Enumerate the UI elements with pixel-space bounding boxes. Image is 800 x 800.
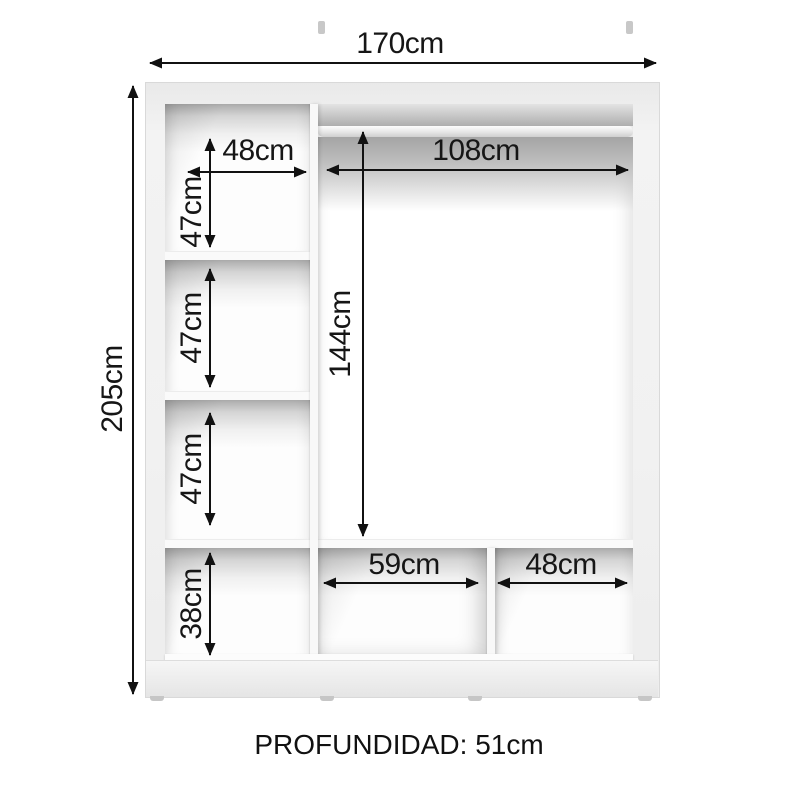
wardrobe-dimension-diagram: 170cm 205cm 48cm 47cm 108cm 144cm 47cm 4…: [0, 0, 800, 800]
dim-label-top-left-shelf-width: 48cm: [222, 136, 293, 166]
dim-label-total-width: 170cm: [356, 29, 444, 59]
dim-label-bottom-left-height: 38cm: [177, 568, 207, 639]
dim-label-hanging-space-height: 144cm: [326, 290, 356, 378]
dim-label-left-compartment-2-height: 47cm: [177, 292, 207, 363]
dim-label-left-compartment-1-height: 47cm: [177, 176, 207, 247]
dim-label-bottom-right-width: 48cm: [525, 550, 596, 580]
depth-caption: PROFUNDIDAD: 51cm: [254, 731, 543, 759]
dim-label-bottom-middle-width: 59cm: [368, 550, 439, 580]
dim-label-left-compartment-3-height: 47cm: [177, 433, 207, 504]
dim-label-hanging-rod-width: 108cm: [432, 136, 520, 166]
dim-label-total-height: 205cm: [98, 345, 128, 433]
